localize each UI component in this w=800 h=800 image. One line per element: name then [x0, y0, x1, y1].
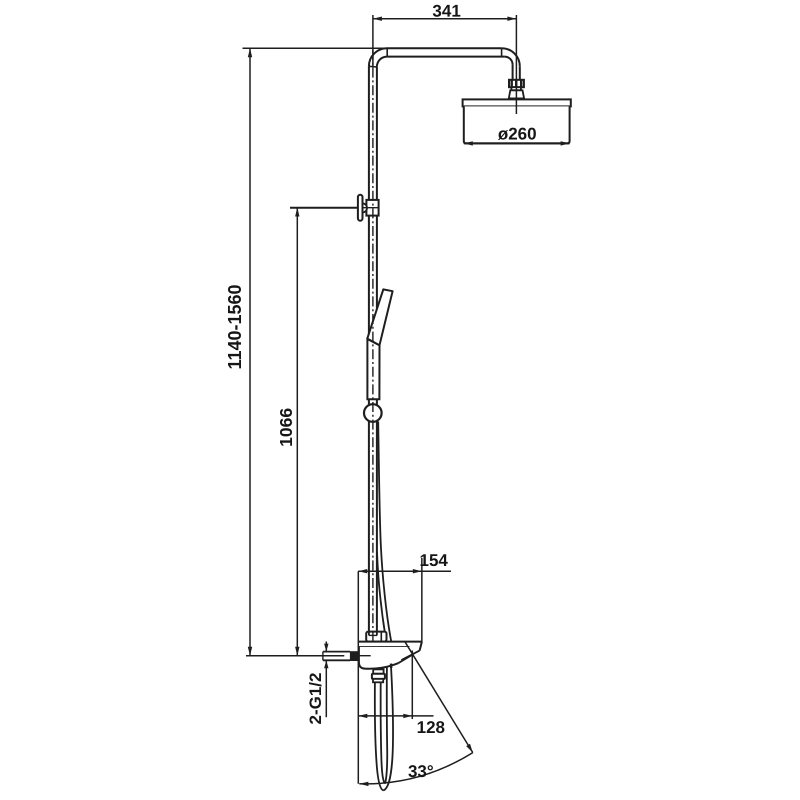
svg-text:128: 128 [417, 718, 445, 737]
svg-text:341: 341 [432, 2, 460, 21]
svg-text:1140-1560: 1140-1560 [225, 284, 245, 369]
svg-text:1066: 1066 [276, 408, 296, 447]
svg-text:ø260: ø260 [498, 124, 537, 143]
svg-text:154: 154 [420, 551, 449, 570]
svg-text:33°: 33° [408, 762, 434, 781]
svg-text:2-G1/2: 2-G1/2 [306, 673, 325, 725]
